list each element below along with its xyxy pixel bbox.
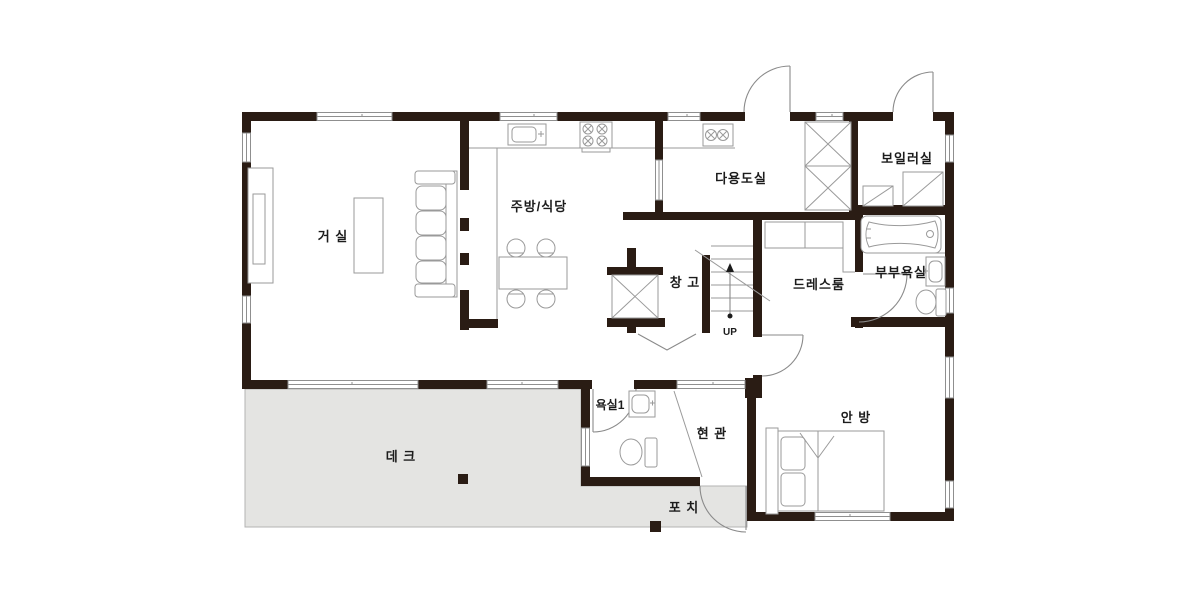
bath1-toilet	[620, 438, 657, 467]
bath1-fixtures	[620, 391, 657, 467]
label-master-bedroom: 안 방	[841, 410, 872, 425]
dining-table	[499, 257, 567, 289]
sliding-door-kitchen-utility	[656, 160, 663, 200]
label-storage: 창 고	[670, 275, 701, 290]
stairs-arrow-head	[726, 263, 734, 272]
window-boiler-east	[946, 135, 954, 162]
window-living-west-1	[243, 133, 251, 162]
sliding-door-entrance-hall	[677, 381, 745, 389]
window-kitchen-north	[500, 113, 557, 121]
window-bedroom-east-1	[946, 357, 954, 398]
boiler-unit	[863, 172, 943, 206]
door-boiler-exterior	[893, 72, 933, 112]
window-masterbath-east	[946, 288, 954, 313]
label-kitchen: 주방/식당	[511, 199, 567, 214]
door-master-bath	[859, 274, 907, 322]
label-dressroom: 드레스룸	[793, 277, 845, 292]
bed	[766, 428, 884, 514]
utility-fixtures	[663, 124, 735, 148]
sofa	[415, 171, 457, 297]
label-stairs-up: UP	[723, 327, 737, 338]
door-utility-exterior	[744, 66, 790, 112]
window-bath1-west	[582, 428, 590, 466]
kitchen-stove	[580, 122, 612, 152]
window-living-west-2	[243, 296, 251, 323]
porch-post	[650, 521, 661, 532]
bathtub	[861, 216, 941, 253]
label-deck: 데 크	[386, 449, 417, 464]
window-living-south	[288, 381, 418, 389]
bedroom-furniture	[766, 428, 884, 514]
label-bath1: 욕실1	[596, 397, 625, 412]
label-boiler: 보일러실	[881, 151, 933, 166]
coffee-table	[354, 198, 383, 273]
window-bedroom-south	[815, 513, 890, 521]
hall-closet	[612, 275, 658, 318]
kitchen-sink	[508, 124, 546, 145]
door-storage-bifold	[638, 334, 696, 350]
dressroom-wardrobe	[765, 222, 855, 272]
label-utility: 다용도실	[715, 171, 767, 186]
window-utility-north	[668, 113, 700, 121]
window-bedroom-east-2	[946, 481, 954, 508]
label-master-bath: 부부욕실	[875, 265, 927, 280]
stairs-arrow-origin	[728, 314, 733, 319]
living-furniture	[248, 168, 457, 297]
window-corridor-north	[816, 113, 843, 121]
label-living: 거 실	[318, 229, 349, 244]
deck-post	[458, 474, 468, 484]
window-living-north	[317, 113, 392, 121]
utility-cabinet	[805, 122, 851, 210]
label-entrance: 현 관	[697, 426, 728, 441]
window-corridor-south	[487, 381, 558, 389]
utility-cooktop	[703, 124, 733, 146]
label-porch: 포 치	[669, 500, 700, 515]
bath1-sink	[629, 391, 655, 417]
door-master-bedroom	[762, 335, 803, 376]
floor-plan-canvas: 거 실 주방/식당 다용도실 보일러실 창 고 드레스룸 부부욕실 욕실1 현 …	[0, 0, 1200, 600]
tv-console	[248, 168, 273, 283]
masterbath-toilet	[916, 289, 946, 316]
